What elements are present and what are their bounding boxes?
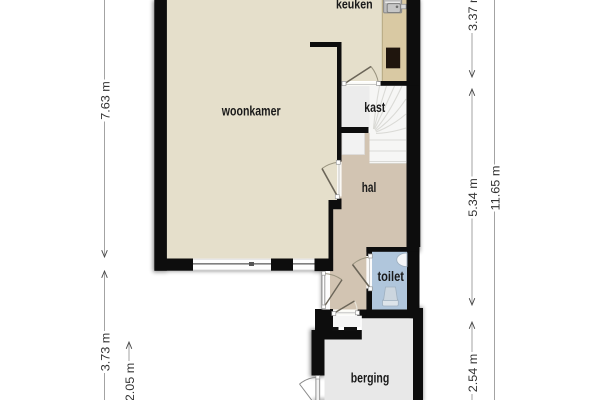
- svg-text:3.73 m: 3.73 m: [99, 333, 113, 372]
- svg-text:berging: berging: [351, 369, 390, 385]
- svg-text:keuken: keuken: [336, 0, 373, 12]
- svg-text:7.63 m: 7.63 m: [99, 81, 113, 120]
- svg-text:2.05 m: 2.05 m: [123, 363, 137, 400]
- svg-text:11.65 m: 11.65 m: [489, 165, 503, 210]
- svg-text:toilet: toilet: [377, 268, 404, 284]
- svg-text:kast: kast: [364, 99, 385, 115]
- svg-text:5.34 m: 5.34 m: [466, 178, 480, 217]
- svg-text:woonkamer: woonkamer: [221, 103, 281, 119]
- svg-text:2.54 m: 2.54 m: [466, 354, 480, 393]
- svg-text:hal: hal: [362, 179, 377, 195]
- svg-text:3.37 m: 3.37 m: [466, 0, 480, 31]
